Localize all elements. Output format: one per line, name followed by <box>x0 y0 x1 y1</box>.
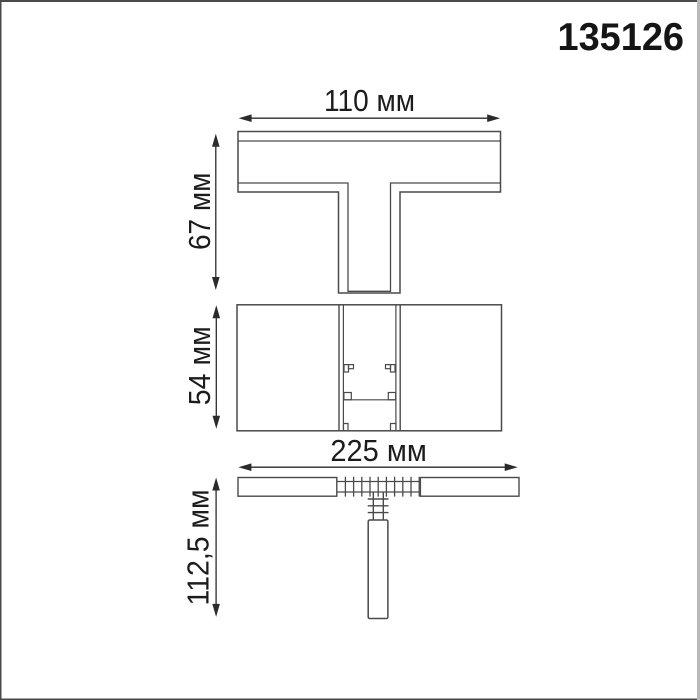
svg-text:110 мм: 110 мм <box>324 83 415 118</box>
svg-text:225 мм: 225 мм <box>330 433 426 468</box>
svg-text:54 мм: 54 мм <box>182 326 217 405</box>
svg-text:112,5 мм: 112,5 мм <box>180 490 215 606</box>
svg-text:67 мм: 67 мм <box>182 173 217 251</box>
svg-text:135126: 135126 <box>558 16 685 59</box>
